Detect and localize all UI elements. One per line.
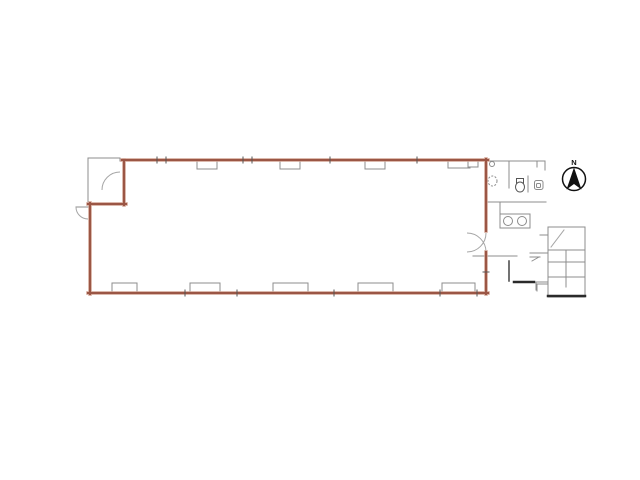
exterior-door-arc-icon — [76, 207, 88, 219]
basin-dashed-icon — [488, 176, 497, 186]
sink-square-icon — [535, 181, 544, 190]
compass-symbol: N — [563, 158, 586, 191]
north-needle-icon — [567, 168, 582, 190]
north-label: N — [571, 158, 576, 167]
round-sink-icon — [518, 217, 527, 226]
floor-plan-svg: N — [0, 0, 640, 480]
floor-plan-canvas: N — [0, 0, 640, 480]
corridor-wall-line — [532, 257, 539, 261]
toilet-bowl-icon — [516, 182, 525, 192]
fixture-circle-icon — [490, 162, 495, 167]
vestibule-door-arc-icon — [102, 172, 120, 190]
round-sink-icon — [504, 217, 513, 226]
